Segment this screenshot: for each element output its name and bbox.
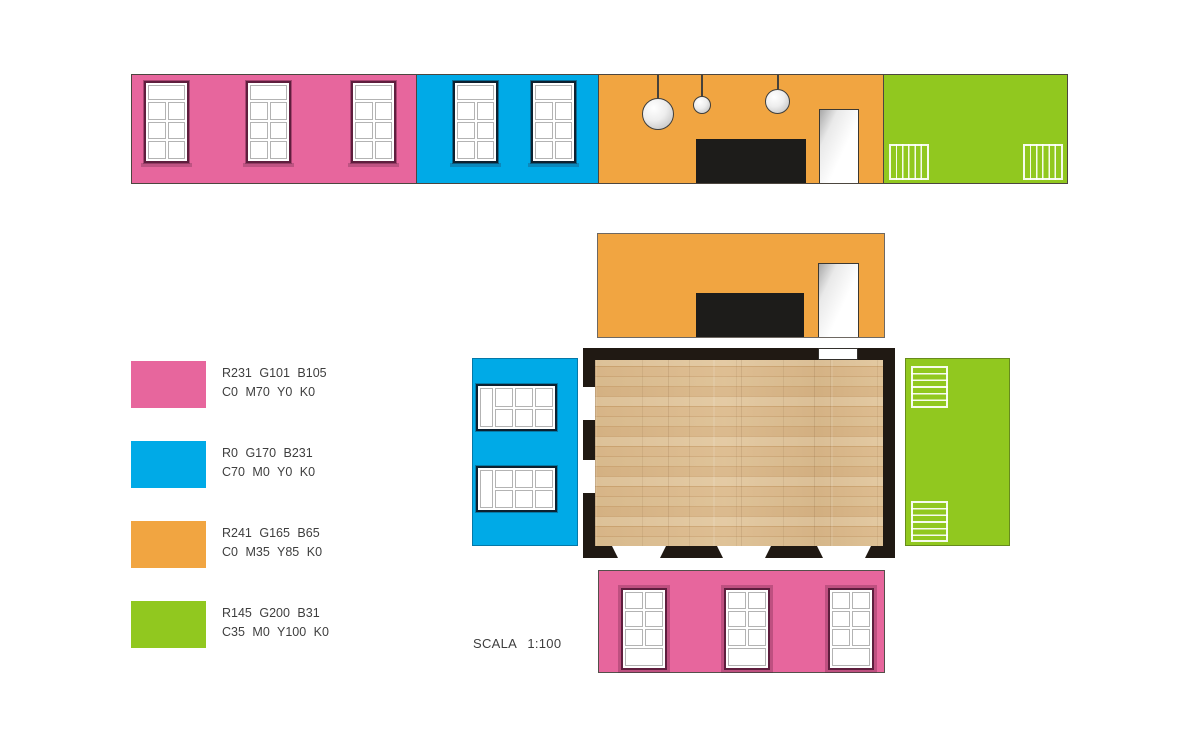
window-grid [148, 102, 185, 159]
elevation-wall-orange [598, 75, 883, 183]
window-icon [828, 588, 874, 670]
window-opening [717, 546, 771, 558]
legend-cmyk-value: C0 M35 Y85 K0 [222, 543, 322, 562]
legend-rgb-value: R0 G170 B231 [222, 444, 315, 463]
parquet-floor [595, 360, 883, 546]
window-pane [148, 85, 185, 100]
window-pane [477, 141, 495, 159]
window-pane [515, 470, 533, 488]
window-pane [535, 122, 553, 140]
window-pane [495, 490, 513, 508]
window-pane [457, 141, 475, 159]
elevation-orange-detail [597, 233, 885, 338]
pendant-lamp-icon [642, 98, 674, 130]
window-grid [832, 592, 870, 646]
legend-swatch-pink [131, 361, 206, 408]
pendant-lamp-icon [765, 89, 790, 114]
plan-window-icon [476, 384, 557, 431]
window-pane [495, 409, 513, 428]
window-sill [243, 163, 294, 167]
window-pane [457, 85, 494, 100]
window-pane [535, 470, 553, 488]
radiator-grille-icon [889, 144, 929, 180]
window-opening [583, 387, 595, 420]
window-pane [535, 388, 553, 407]
window-pane [852, 611, 870, 628]
window-pane [555, 122, 573, 140]
window-grid [535, 102, 572, 159]
window-pane [148, 122, 166, 140]
window-pane [535, 490, 553, 508]
legend-values: R241 G165 B65 C0 M35 Y85 K0 [222, 524, 322, 562]
legend-values: R145 G200 B31 C35 M0 Y100 K0 [222, 604, 329, 642]
window-pane [457, 102, 475, 120]
legend-values: R231 G101 B105 C0 M70 Y0 K0 [222, 364, 327, 402]
legend-values: R0 G170 B231 C70 M0 Y0 K0 [222, 444, 315, 482]
legend-rgb-value: R241 G165 B65 [222, 524, 322, 543]
legend-swatch-blue [131, 441, 206, 488]
lamp-cord [657, 75, 659, 98]
window-pane [168, 102, 186, 120]
window-grid [457, 102, 494, 159]
pendant-lamp-icon [693, 96, 711, 114]
window-pane [728, 592, 746, 609]
elevation-wall-blue [416, 75, 598, 183]
window-pane [535, 85, 572, 100]
window-pane [515, 490, 533, 508]
window-pane [375, 102, 393, 120]
window-pane [535, 141, 553, 159]
window-pane [168, 122, 186, 140]
window-icon [621, 588, 667, 670]
legend-swatch-green [131, 601, 206, 648]
window-pane [480, 388, 493, 427]
window-grid [625, 592, 663, 646]
window-pane [555, 141, 573, 159]
window-pane [355, 85, 392, 100]
interior-design-board: R231 G101 B105 C0 M70 Y0 K0 R0 G170 B231… [0, 0, 1199, 749]
window-opening [817, 546, 871, 558]
window-opening [583, 460, 595, 493]
window-pane [852, 629, 870, 646]
window-sill [450, 163, 501, 167]
legend-swatch-orange [131, 521, 206, 568]
window-pane [852, 592, 870, 609]
legend-row-green: R145 G200 B31 C35 M0 Y100 K0 [131, 601, 411, 649]
window-pane [555, 102, 573, 120]
window-pane [625, 629, 643, 646]
window-pane [375, 122, 393, 140]
window-pane [477, 122, 495, 140]
window-pane [495, 388, 513, 407]
window-pane [477, 102, 495, 120]
window-pane [148, 141, 166, 159]
window-icon [351, 81, 396, 163]
window-pane [270, 122, 288, 140]
window-pane [495, 470, 513, 488]
window-pane [148, 102, 166, 120]
window-pane [250, 122, 268, 140]
window-pane [645, 629, 663, 646]
window-pane [270, 102, 288, 120]
window-sill [348, 163, 399, 167]
window-icon [246, 81, 291, 163]
plan-panel-blue [472, 358, 578, 546]
window-grid [728, 592, 766, 646]
door-icon [819, 109, 859, 183]
door-icon [818, 263, 859, 337]
window-pane [832, 629, 850, 646]
fireplace-panel [696, 139, 806, 183]
floor-plan [583, 348, 895, 558]
window-pane [535, 409, 553, 428]
window-grid [495, 388, 553, 427]
window-pane [748, 629, 766, 646]
door-opening [818, 348, 858, 360]
window-pane [728, 648, 766, 666]
window-pane [625, 648, 663, 666]
window-pane [250, 85, 287, 100]
window-grid [355, 102, 392, 159]
legend-row-blue: R0 G170 B231 C70 M0 Y0 K0 [131, 441, 411, 489]
window-opening [612, 546, 666, 558]
radiator-icon [911, 501, 948, 542]
window-sill [141, 163, 192, 167]
window-pane [645, 611, 663, 628]
unfolded-elevations-strip [131, 74, 1068, 184]
window-icon [453, 81, 498, 163]
window-pane [270, 141, 288, 159]
window-sill [528, 163, 579, 167]
window-pane [515, 388, 533, 407]
window-pane [375, 141, 393, 159]
window-pane [355, 122, 373, 140]
window-pane [457, 122, 475, 140]
window-pane [748, 611, 766, 628]
radiator-icon [911, 366, 948, 408]
window-pane [728, 629, 746, 646]
window-pane [480, 470, 493, 508]
window-pane [355, 141, 373, 159]
window-pane [515, 409, 533, 428]
legend-row-orange: R241 G165 B65 C0 M35 Y85 K0 [131, 521, 411, 569]
elevation-wall-pink [132, 75, 416, 183]
window-pane [625, 611, 643, 628]
fireplace-panel [696, 293, 804, 337]
window-pane [625, 592, 643, 609]
elevation-wall-green [883, 75, 1067, 183]
window-pane [168, 141, 186, 159]
plan-window-icon [476, 466, 557, 512]
legend-rgb-value: R145 G200 B31 [222, 604, 329, 623]
window-pane [728, 611, 746, 628]
window-pane [250, 102, 268, 120]
legend-cmyk-value: C35 M0 Y100 K0 [222, 623, 329, 642]
legend-cmyk-value: C70 M0 Y0 K0 [222, 463, 315, 482]
scale-label: SCALA 1:100 [473, 636, 561, 651]
window-pane [645, 592, 663, 609]
window-pane [748, 592, 766, 609]
window-pane [355, 102, 373, 120]
plan-panel-green [905, 358, 1010, 546]
radiator-grille-icon [1023, 144, 1063, 180]
window-icon [144, 81, 189, 163]
legend-row-pink: R231 G101 B105 C0 M70 Y0 K0 [131, 361, 411, 409]
elevation-pink-detail [598, 570, 885, 673]
window-pane [832, 611, 850, 628]
window-icon [724, 588, 770, 670]
legend-cmyk-value: C0 M70 Y0 K0 [222, 383, 327, 402]
window-pane [832, 648, 870, 666]
window-icon [531, 81, 576, 163]
window-pane [250, 141, 268, 159]
window-pane [832, 592, 850, 609]
lamp-cord [701, 75, 703, 96]
lamp-cord [777, 75, 779, 89]
window-grid [495, 470, 553, 508]
window-pane [535, 102, 553, 120]
legend-rgb-value: R231 G101 B105 [222, 364, 327, 383]
window-grid [250, 102, 287, 159]
